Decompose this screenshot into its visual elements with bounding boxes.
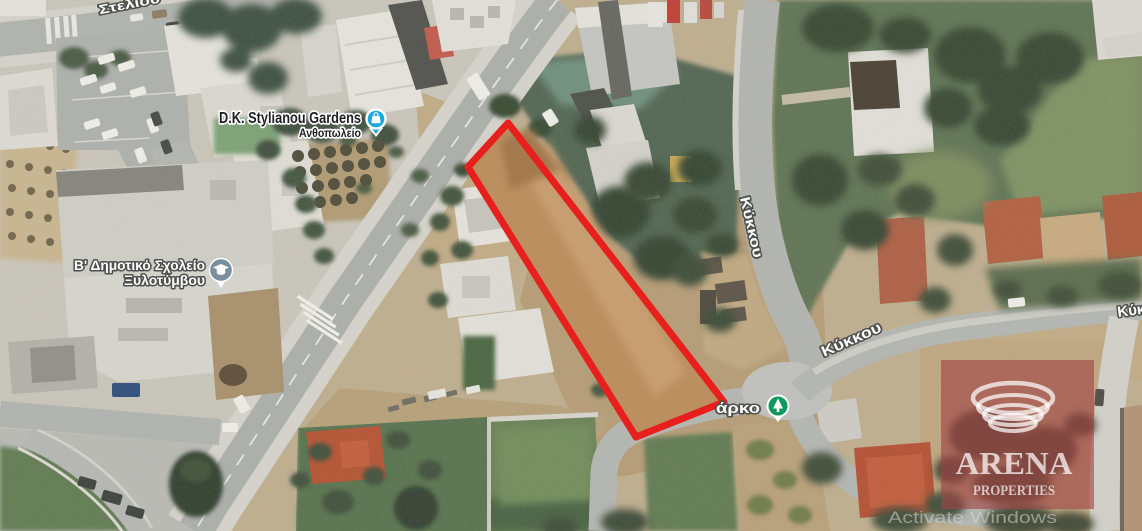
svg-text:Β' Δημοτικό Σχολείο: Β' Δημοτικό Σχολείο	[74, 258, 205, 273]
svg-text:D.K. Stylianou Gardens: D.K. Stylianou Gardens	[219, 110, 361, 127]
svg-text:ARENA: ARENA	[956, 445, 1073, 481]
svg-text:PROPERTIES: PROPERTIES	[973, 483, 1055, 499]
svg-text:Ξυλοτύμβου: Ξυλοτύμβου	[124, 273, 205, 288]
svg-text:άρκο: άρκο	[716, 400, 760, 417]
svg-text:Activate Windows: Activate Windows	[888, 508, 1057, 527]
svg-text:Ανθοπωλείο: Ανθοπωλείο	[299, 126, 361, 140]
